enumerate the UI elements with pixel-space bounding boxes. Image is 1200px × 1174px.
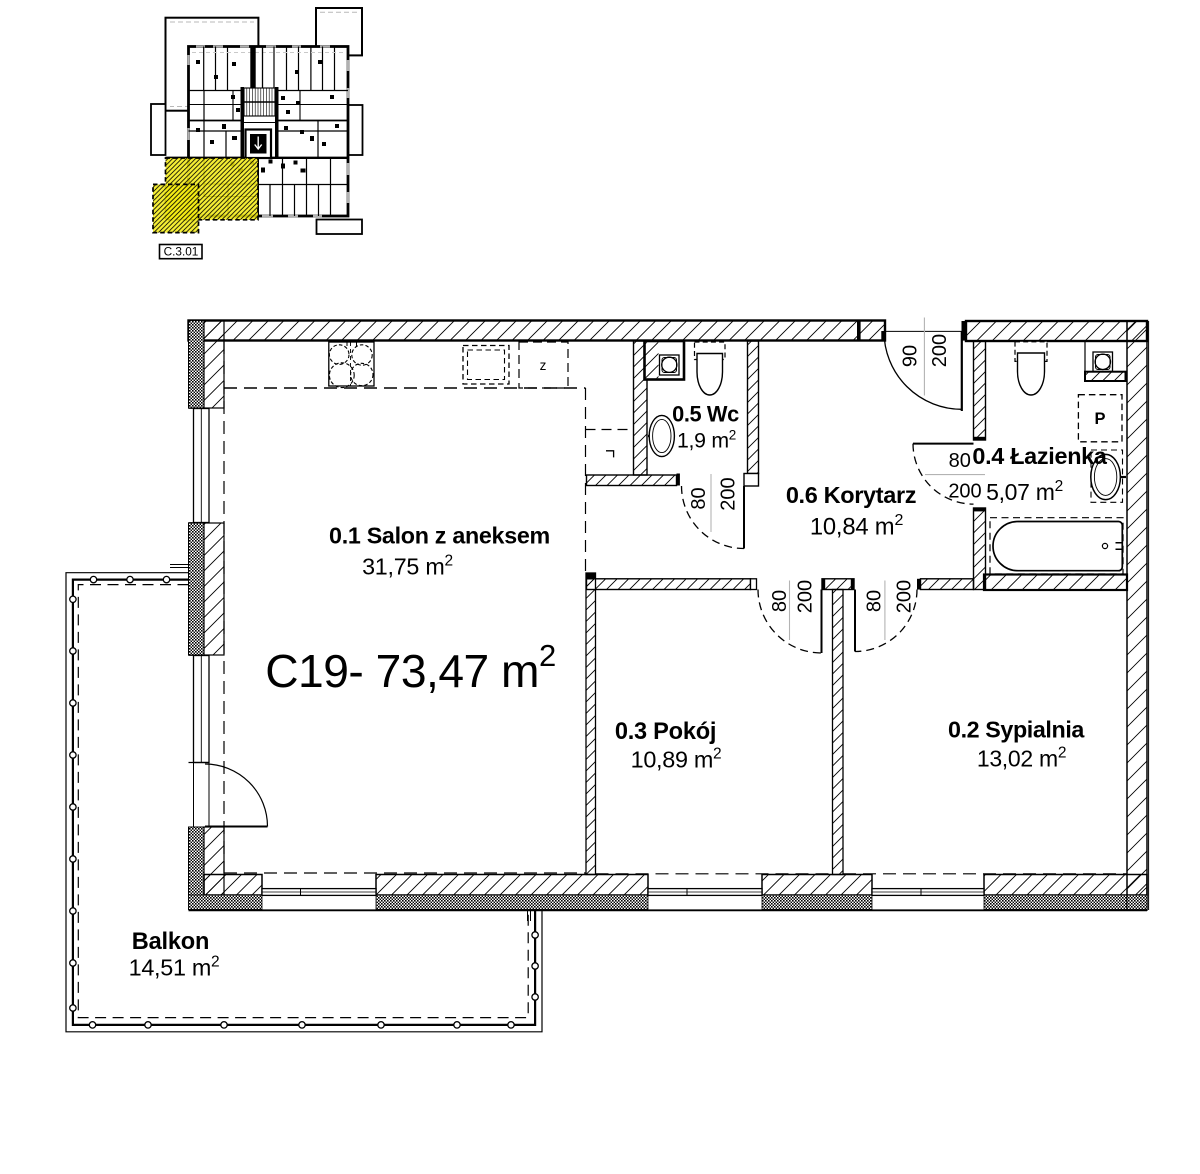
svg-text:200: 200 bbox=[894, 580, 916, 613]
svg-text:80: 80 bbox=[863, 590, 885, 612]
svg-text:C.3.01: C.3.01 bbox=[164, 245, 199, 259]
svg-text:14,51 m2: 14,51 m2 bbox=[129, 954, 220, 981]
svg-text:80: 80 bbox=[949, 450, 971, 472]
svg-text:0.2 Sypialnia: 0.2 Sypialnia bbox=[948, 717, 1085, 743]
svg-text:80: 80 bbox=[769, 590, 791, 612]
svg-text:0.6 Korytarz: 0.6 Korytarz bbox=[786, 482, 916, 508]
svg-text:31,75 m2: 31,75 m2 bbox=[362, 553, 453, 580]
svg-text:0.3 Pokój: 0.3 Pokój bbox=[615, 719, 716, 745]
svg-text:200: 200 bbox=[929, 334, 951, 367]
svg-text:0.1 Salon z aneksem: 0.1 Salon z aneksem bbox=[329, 523, 550, 549]
svg-text:5,07 m2: 5,07 m2 bbox=[986, 478, 1063, 505]
svg-text:200: 200 bbox=[718, 477, 740, 510]
svg-text:0.4 Łazienka: 0.4 Łazienka bbox=[972, 443, 1108, 469]
svg-text:80: 80 bbox=[688, 487, 710, 509]
svg-text:10,89 m2: 10,89 m2 bbox=[631, 746, 722, 773]
svg-text:10,84 m2: 10,84 m2 bbox=[810, 512, 904, 541]
svg-text:1,9 m2: 1,9 m2 bbox=[677, 428, 736, 453]
svg-text:P: P bbox=[1094, 410, 1105, 428]
svg-text:Balkon: Balkon bbox=[132, 929, 209, 955]
svg-text:C19- 73,47 m2: C19- 73,47 m2 bbox=[265, 638, 556, 697]
svg-text:z: z bbox=[540, 358, 547, 373]
svg-text:200: 200 bbox=[948, 480, 981, 502]
svg-text:200: 200 bbox=[795, 580, 817, 613]
svg-text:90: 90 bbox=[900, 345, 922, 367]
svg-text:13,02 m2: 13,02 m2 bbox=[977, 745, 1066, 772]
svg-text:0.5 Wc: 0.5 Wc bbox=[672, 402, 739, 427]
